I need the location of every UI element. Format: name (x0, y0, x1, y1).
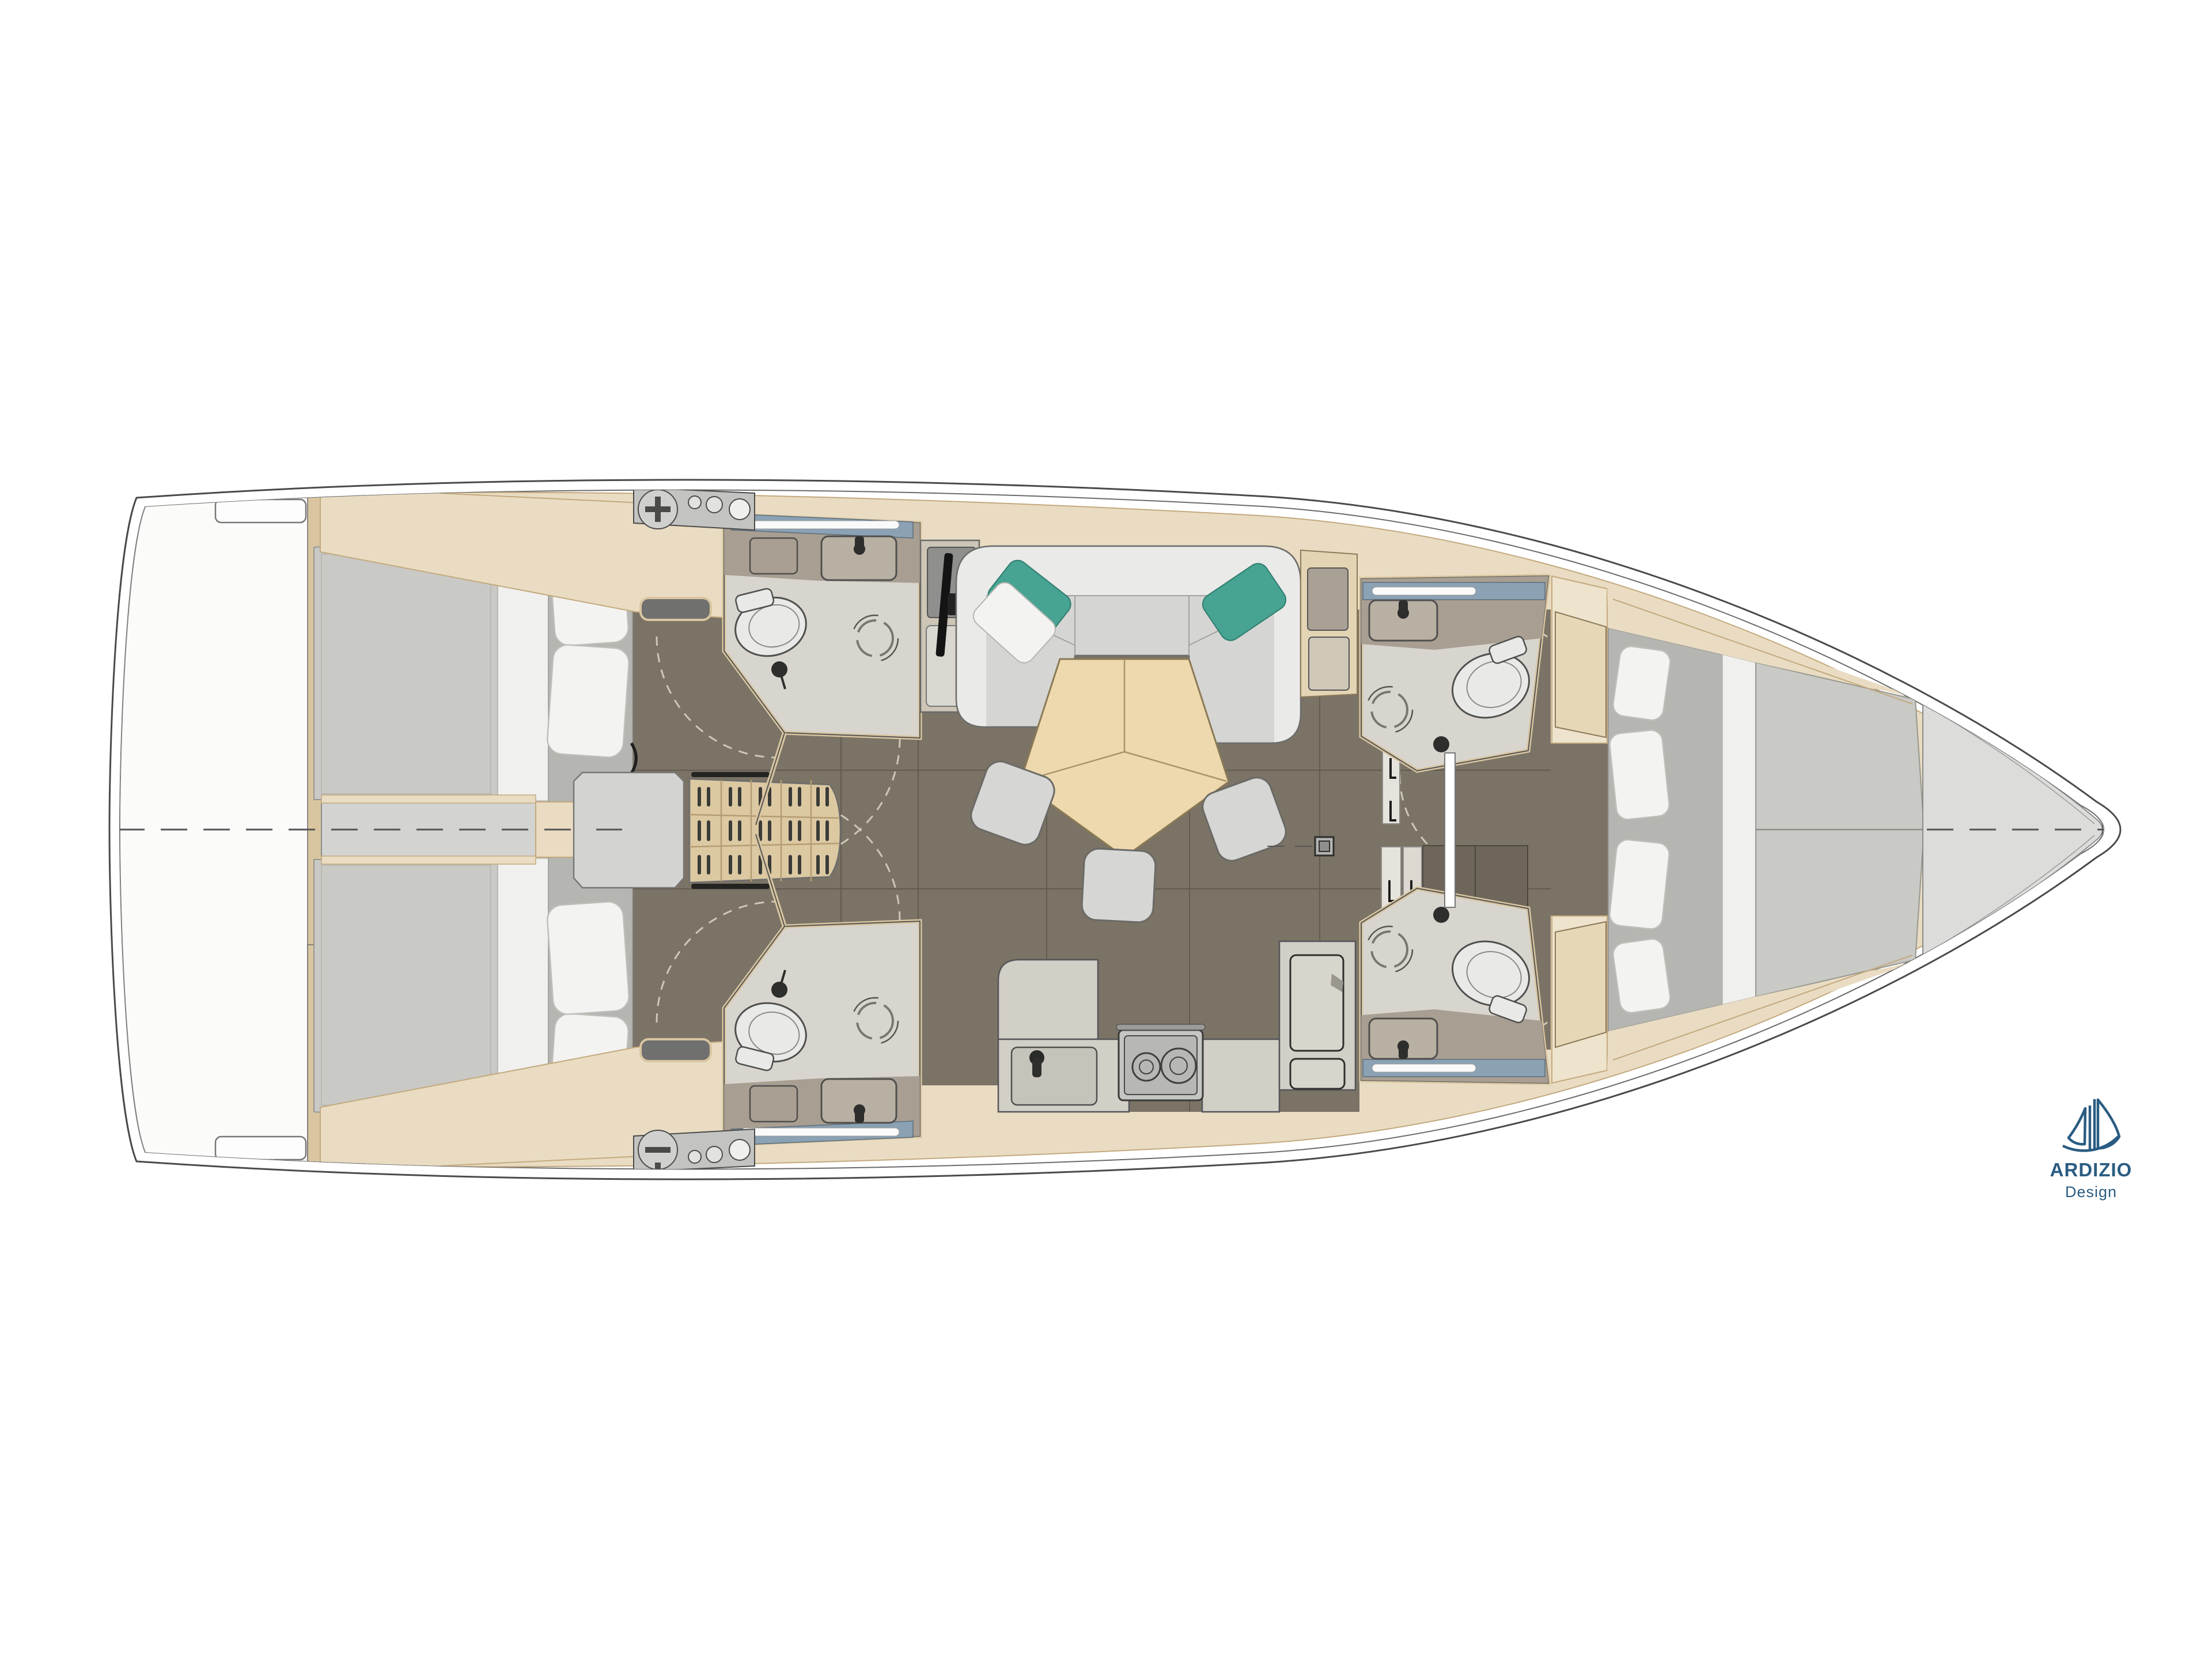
svg-text:Design: Design (2065, 1183, 2117, 1201)
svg-text:ARDIZIO: ARDIZIO (2050, 1159, 2133, 1180)
